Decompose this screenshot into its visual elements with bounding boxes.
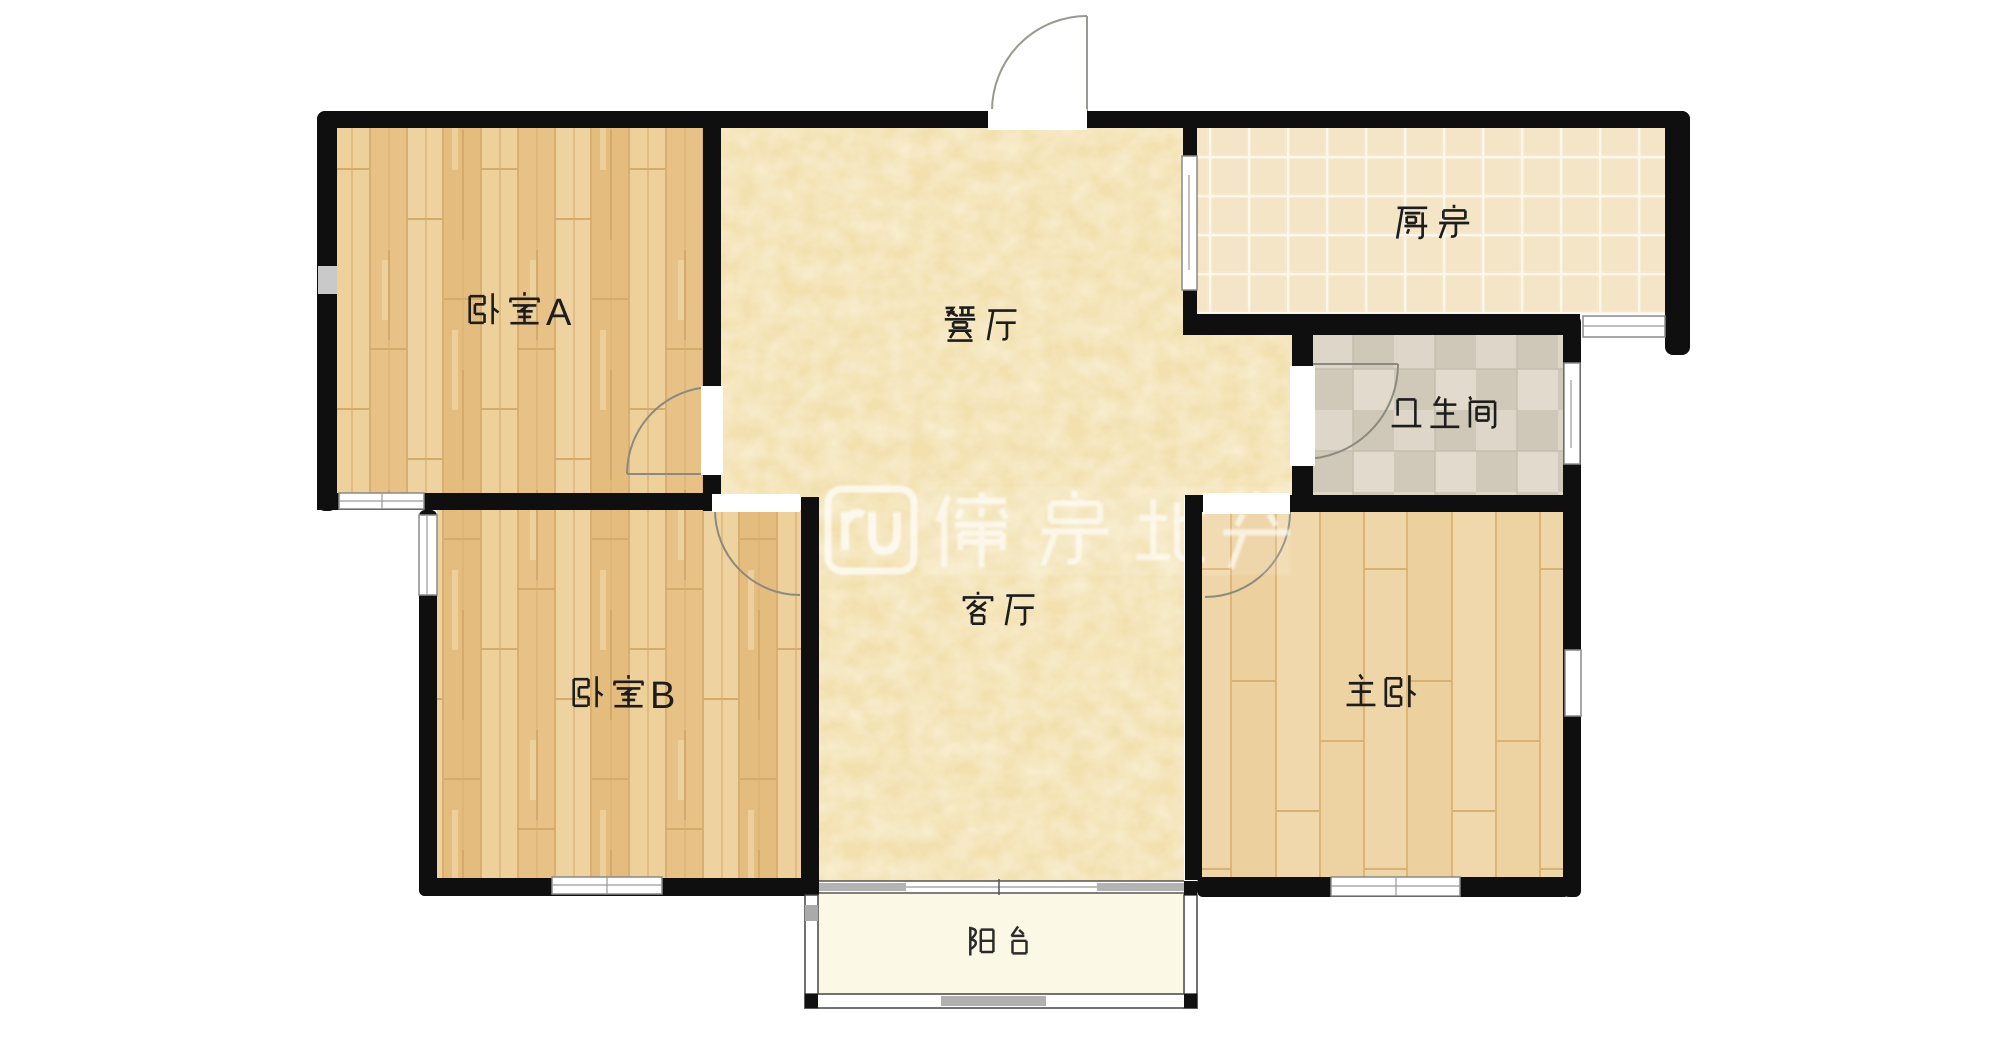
svg-text:B: B (650, 675, 675, 717)
svg-text:A: A (546, 292, 572, 334)
